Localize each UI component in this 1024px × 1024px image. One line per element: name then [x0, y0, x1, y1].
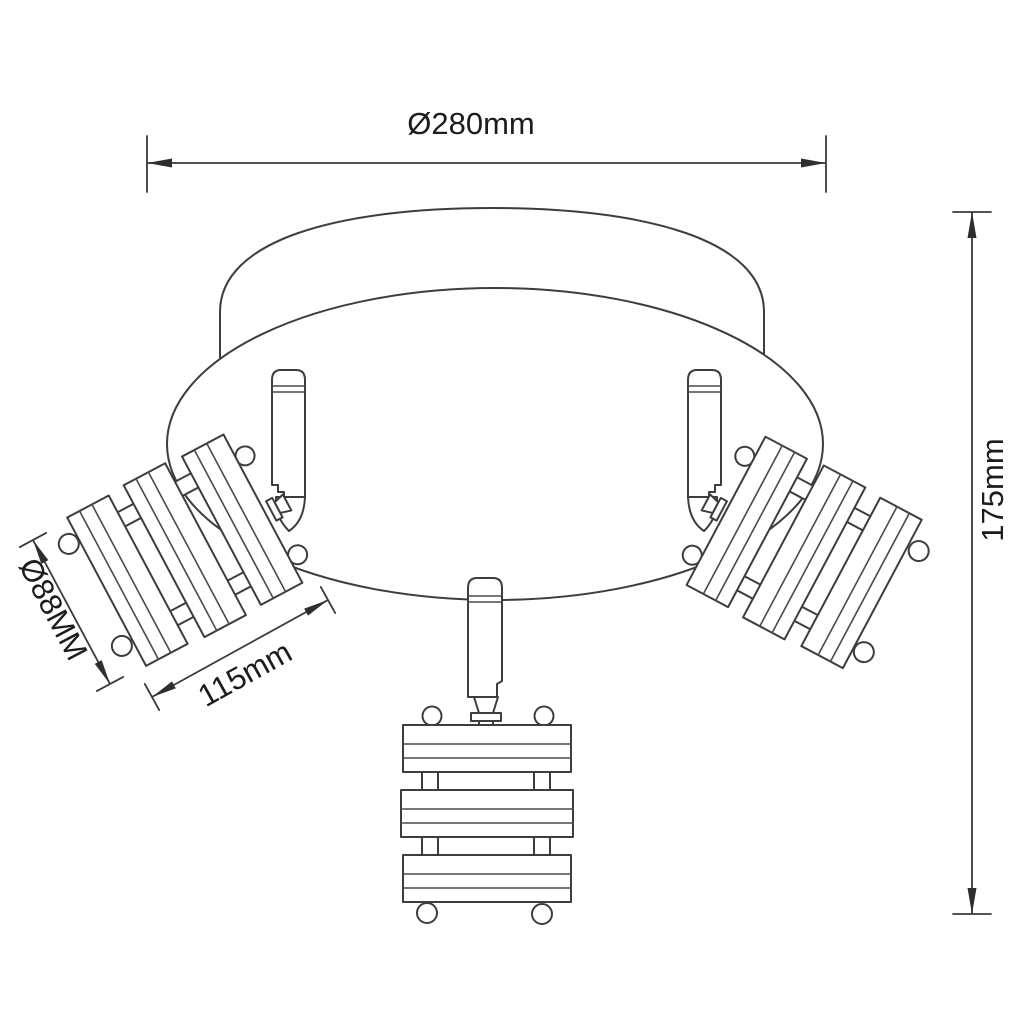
- dim-arrow-left-icon: [147, 159, 172, 168]
- canopy-diameter-label: Ø280mm: [407, 106, 534, 141]
- fixture-drawing-svg: Ø280mm 175mm Ø88MM 115mm: [0, 0, 1024, 1024]
- dim-overall-height: 175mm: [953, 212, 1010, 914]
- dim-arrow-upright-icon: [304, 600, 328, 616]
- dim-canopy-diameter: Ø280mm: [147, 106, 826, 192]
- dim-arrow-right-icon: [801, 159, 826, 168]
- spot-arm-left: [266, 370, 305, 531]
- dim-arrow-up-icon: [968, 212, 977, 238]
- head-diameter-label: Ø88MM: [12, 552, 95, 666]
- dim-arrow-downright-icon: [95, 660, 110, 684]
- spot-arm-right: [688, 370, 727, 531]
- overall-height-label: 175mm: [975, 438, 1010, 541]
- spot-head-bottom: [401, 707, 573, 925]
- fixture-diagram: Ø280mm 175mm Ø88MM 115mm: [0, 0, 1024, 1024]
- dim-arrow-downleft-icon: [152, 681, 176, 697]
- spot-arm-bottom: [468, 578, 502, 726]
- dim-arrow-down-icon: [968, 888, 977, 914]
